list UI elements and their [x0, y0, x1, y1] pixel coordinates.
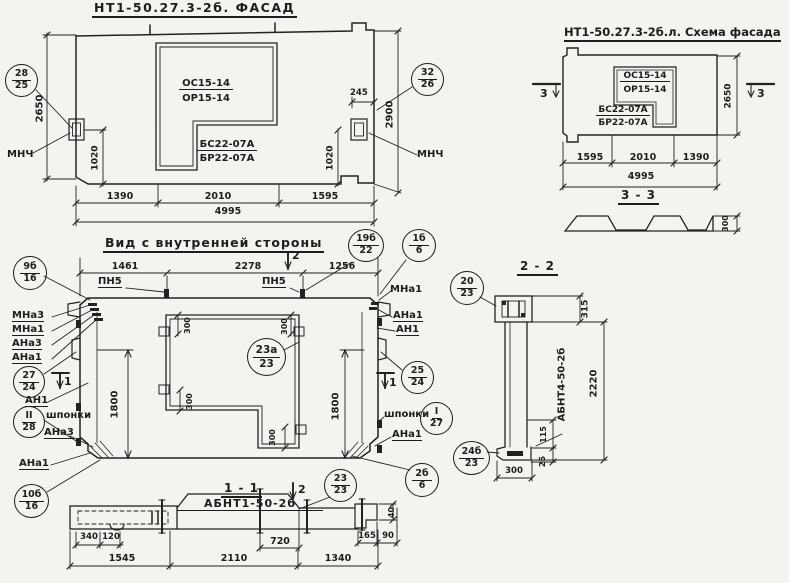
section-2-2-title: 2 - 2 — [517, 259, 558, 276]
section-3-3-profile — [565, 213, 740, 234]
section-1-1-dim-40: 40 — [386, 504, 398, 520]
interior-ana3-left-mid: АНа3 — [44, 427, 74, 439]
facade-sill-mark-top: БС22-07А — [197, 139, 257, 151]
section-2-2-dim-115: 115 — [537, 422, 550, 446]
interior-pn5-left: ПН5 — [98, 276, 122, 288]
section-2-2-dim-25: 25 — [536, 450, 549, 472]
section-1-1-dim-b1: 1545 — [100, 553, 144, 564]
schema-sill-mark-top: БС22-07А — [596, 105, 650, 116]
facade-dim-height-left: 2650 — [32, 88, 47, 128]
schema-dim-height: 2650 — [722, 77, 736, 115]
facade-window-mark-bottom: ОР15-14 — [179, 93, 233, 104]
interior-dim-t1: 1461 — [103, 261, 147, 272]
interior-dim-1800-left: 1800 — [107, 384, 122, 424]
section-2-2-label: АБНТ4-50-2б — [553, 336, 570, 432]
schema-dim-total: 4995 — [618, 171, 664, 182]
schema-sill-mark-bottom: БР22-07А — [596, 118, 650, 128]
section-3-3-title: 3 - 3 — [618, 188, 659, 205]
interior-mark-balloon-27: 27 24 — [13, 366, 45, 398]
section-1-1-dim-b2: 2110 — [212, 553, 256, 564]
interior-dim-300-4: 300 — [266, 428, 279, 447]
schema-window-mark-top: ОС15-14 — [620, 71, 670, 82]
schema-section-mark-right: 3 — [757, 87, 765, 100]
schema-dim-b3: 1390 — [674, 152, 718, 163]
section-1-1-dim-120: 120 — [100, 532, 122, 542]
interior-ana1-right-2: АНа1 — [392, 429, 422, 441]
interior-mark-balloon-keys-right: I 27 — [420, 402, 453, 435]
interior-mark-balloon-23a: 23а 23 — [247, 338, 286, 376]
facade-dim-total: 4995 — [203, 206, 253, 217]
facade-window-mark-top: ОС15-14 — [179, 78, 233, 90]
interior-mark-balloon-2b: 2б 6 — [405, 463, 439, 497]
facade-dim-anchor-left: 1020 — [89, 141, 102, 175]
interior-dim-300-2: 300 — [278, 317, 291, 336]
interior-left-label-ana3: АНа3 — [12, 338, 42, 350]
section-1-1-dim-340: 340 — [77, 532, 101, 542]
interior-dim-1800-right: 1800 — [328, 386, 343, 426]
section-2-2-dim-2220: 2220 — [586, 360, 601, 406]
facade-dim-b1: 1390 — [98, 191, 142, 202]
facade-sill-mark-bottom: БР22-07А — [197, 153, 257, 164]
interior-an1-right: АН1 — [396, 324, 419, 336]
facade-anchor-label-right: МНЧ — [417, 149, 443, 160]
facade-dim-b2: 2010 — [196, 191, 240, 202]
section-1-1-title: 1 - 1 — [221, 481, 262, 498]
interior-mark-balloon-23: 23 23 — [324, 469, 357, 502]
section-1-1-dim-90: 90 — [379, 531, 397, 541]
section-2-2-dim-315: 315 — [578, 297, 592, 321]
schema-dim-b2: 2010 — [621, 152, 665, 163]
interior-dim-300-3: 300 — [183, 392, 196, 411]
interior-mark-balloon-keys-left: II 28 — [13, 406, 45, 438]
interior-ana1-left-bottom: АНа1 — [19, 458, 49, 470]
interior-cut-marks — [52, 252, 394, 499]
interior-left-label-ana1: АНа1 — [12, 352, 42, 364]
interior-panel — [68, 298, 390, 458]
section-2-2-profile — [495, 296, 532, 460]
section-1-1-dim-b3: 1340 — [316, 553, 360, 564]
section-2-2-mark-balloon-24b: 24б 23 — [453, 441, 490, 475]
facade-dim-window-offset: 245 — [350, 88, 368, 98]
interior-dim-t2: 2278 — [226, 261, 270, 272]
interior-pn5-right: ПН5 — [262, 276, 286, 288]
interior-dim-t3: 1256 — [320, 261, 364, 272]
interior-mark-balloon-1b: 1б 6 — [402, 229, 436, 262]
interior-cut2-top-label: 2 — [292, 249, 300, 262]
interior-mark-balloon-25: 25 24 — [401, 361, 434, 394]
facade-title: НТ1-50.27.3-2б. ФАСАД — [92, 0, 297, 18]
schema-window-mark-bottom: ОР15-14 — [620, 85, 670, 95]
section-2-2-mark-balloon-20: 20 23 — [450, 271, 484, 305]
section-1-1-label: АБНТ1-50-2б — [177, 497, 323, 511]
interior-dimension-lines — [77, 258, 381, 458]
interior-mark-balloon-9b: 9б 16 — [13, 256, 47, 290]
interior-mark-balloon-10b: 10б 16 — [14, 484, 49, 518]
facade-dim-height-right: 2900 — [383, 92, 397, 136]
facade-dim-anchor-right: 1020 — [324, 141, 337, 175]
interior-mark-balloon-19b: 19б 22 — [348, 229, 384, 262]
section-2-2-dim-300: 300 — [500, 466, 528, 476]
schema-section-mark-left: 3 — [540, 87, 548, 100]
interior-mna1-top-right: МНа1 — [390, 284, 422, 295]
interior-left-label-mna3: МНа3 — [12, 310, 44, 322]
interior-shponki-left: шпонки — [46, 410, 91, 421]
facade-mark-balloon-right: 32 26 — [411, 63, 444, 96]
interior-weld-marks — [76, 289, 382, 453]
interior-ana1-right-1: АНа1 — [393, 310, 423, 322]
interior-cut1-left-label: 1 — [64, 375, 72, 388]
facade-dim-b3: 1595 — [303, 191, 347, 202]
schema-dim-b1: 1595 — [568, 152, 612, 163]
facade-anchor-label-left: МНЧ — [7, 149, 33, 160]
interior-left-label-mna1: МНа1 — [12, 324, 44, 336]
section-1-1-dim-720: 720 — [262, 536, 298, 547]
section-1-1-dim-165: 165 — [356, 531, 378, 541]
interior-dim-300-1: 300 — [181, 316, 194, 335]
section-3-3-dim-thickness: 300 — [719, 214, 732, 232]
interior-cut2-bottom-label: 2 — [298, 483, 306, 496]
interior-cut1-right-label: 1 — [389, 376, 397, 389]
drawing-sheet: НТ1-50.27.3-2б. ФАСАД ОС15-14 ОР15-14 БС… — [0, 0, 789, 583]
schema-title: НТ1-50.27.3-2б.л. Схема фасада — [564, 25, 781, 42]
